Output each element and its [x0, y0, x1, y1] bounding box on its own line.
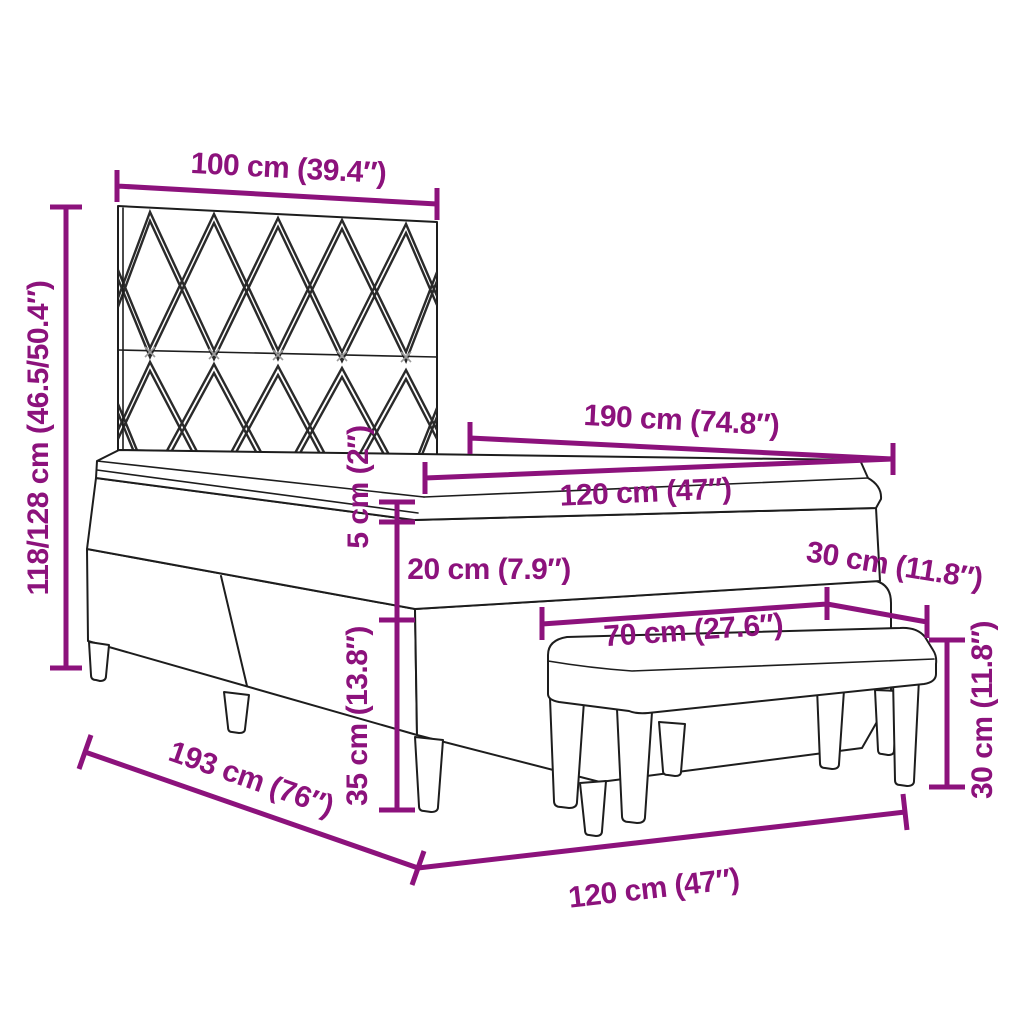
dim-bench-height: 30 cm (11.8″) [929, 621, 999, 799]
dim-bed-inner-length-label: 190 cm (74.8″) [583, 399, 780, 442]
dim-mattress-height-label: 20 cm (7.9″) [407, 553, 570, 586]
bench-leg [893, 678, 919, 786]
bench-leg [817, 688, 844, 769]
bench-leg [617, 709, 652, 823]
dim-topper-height-label: 5 cm (2″) [342, 425, 375, 548]
bed-leg [580, 781, 606, 836]
dim-overall-height: 118/128 cm (46.5/50.4″) [22, 207, 82, 668]
dimension-diagram: 100 cm (39.4″) 118/128 cm (46.5/50.4″) 1… [0, 0, 1024, 1024]
dim-bench-height-label: 30 cm (11.8″) [966, 621, 999, 799]
dim-frame-width-label: 120 cm (47″) [567, 862, 741, 914]
bed-drawing [87, 206, 891, 836]
dim-headboard-width-label: 100 cm (39.4″) [190, 147, 387, 190]
dim-frame-width: 120 cm (47″) [418, 794, 907, 915]
bench-leg [659, 722, 685, 776]
dim-base-height-label: 35 cm (13.8″) [341, 626, 374, 806]
bench-leg [550, 698, 584, 808]
bed-diagram-canvas: 100 cm (39.4″) 118/128 cm (46.5/50.4″) 1… [0, 0, 1024, 1024]
bed-leg [415, 737, 443, 812]
bed-leg [89, 642, 109, 681]
dim-overall-height-label: 118/128 cm (46.5/50.4″) [22, 281, 55, 596]
bed-leg [224, 692, 249, 733]
